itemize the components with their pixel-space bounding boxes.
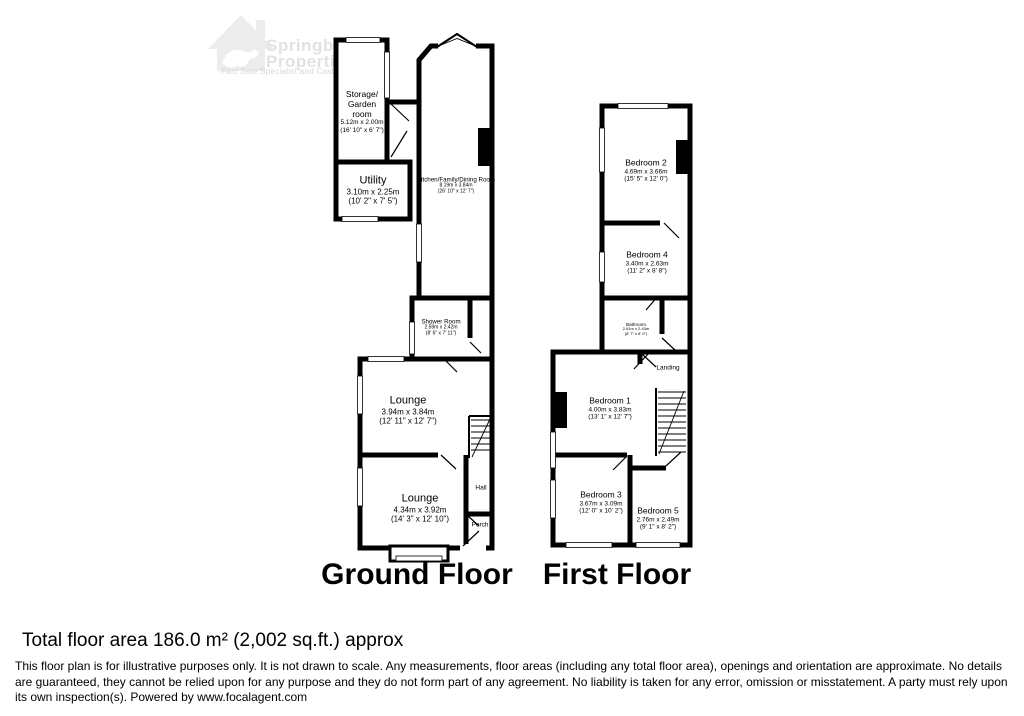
room-label-kitchen: Kitchen/Family/Dining Room 8.19m x 3.84m…: [417, 177, 495, 196]
room-name: Porch: [472, 521, 489, 528]
chimney-breast: [478, 128, 494, 166]
room-name: Lounge: [379, 394, 437, 407]
room-dim-imperial: (15' 5" x 12' 0"): [624, 176, 668, 183]
total-floor-area: Total floor area 186.0 m² (2,002 sq.ft.)…: [22, 630, 403, 652]
room-label-bedroom-5: Bedroom 5 2.76m x 2.49m (9' 1" x 8' 2"): [637, 507, 680, 532]
room-label-storage-garden: Storage/ Garden room 5.12m x 2.00m (16' …: [340, 90, 384, 134]
room-dim-imperial: (12' 11" x 12' 7"): [379, 416, 437, 425]
room-dim-imperial: (14' 3" x 12' 10"): [391, 514, 449, 523]
room-dim-imperial: (8' 7" x 8' 0"): [623, 332, 649, 337]
staircase-first: [656, 388, 686, 456]
room-dim-imperial: (13' 1" x 12' 7"): [588, 414, 632, 421]
room-dim-metric: 5.12m x 2.00m: [340, 119, 384, 126]
room-name: Bedroom 4: [626, 251, 669, 261]
room-name: Lounge: [391, 492, 449, 505]
bay-window: [437, 34, 477, 50]
room-label-bathroom: Bathroom 2.61m x 2.43m (8' 7" x 8' 0"): [623, 322, 649, 336]
room-name: Hall: [475, 484, 486, 491]
room-name: Landing: [656, 364, 679, 371]
floorplan-page: Springbok Properties Fast Sale Specialis…: [0, 0, 1024, 716]
room-dim-metric: 3.67m x 3.09m: [579, 500, 623, 507]
room-label-bedroom-1: Bedroom 1 4.00m x 3.83m (13' 1" x 12' 7"…: [588, 397, 632, 422]
room-dim-imperial: (16' 10" x 6' 7"): [340, 127, 384, 134]
room-label-hall: Hall: [475, 484, 486, 491]
room-dim-metric: 4.34m x 3.92m: [391, 505, 449, 514]
floor-plan-drawing: [0, 0, 1024, 716]
chimney-breast: [553, 392, 567, 428]
room-label-shower-room: Shower Room 2.59m x 2.42m (8' 6" x 7' 11…: [421, 319, 460, 338]
room-name: Bedroom 2: [624, 159, 668, 169]
room-name: Storage/ Garden room: [340, 90, 384, 119]
room-dim-imperial: (8' 6" x 7' 11"): [421, 332, 460, 338]
room-name: Utility: [347, 174, 400, 187]
room-dim-metric: 2.76m x 2.49m: [637, 516, 680, 523]
room-dim-metric: 4.69m x 3.66m: [624, 168, 668, 175]
room-label-lounge-1: Lounge 3.94m x 3.84m (12' 11" x 12' 7"): [379, 394, 437, 425]
room-dim-imperial: (12' 0" x 10' 2"): [579, 508, 623, 515]
room-dim-metric: 3.40m x 2.63m: [626, 260, 669, 267]
room-name: Bedroom 3: [579, 491, 623, 501]
ground-floor-title: Ground Floor: [321, 558, 513, 592]
room-name: Bedroom 1: [588, 397, 632, 407]
room-dim-imperial: (11' 2" x 8' 8"): [626, 268, 669, 275]
room-label-bedroom-2: Bedroom 2 4.69m x 3.66m (15' 5" x 12' 0"…: [624, 159, 668, 184]
chimney-breast: [676, 140, 692, 174]
room-name: Bedroom 5: [637, 507, 680, 517]
first-floor-title: First Floor: [543, 558, 691, 592]
first-floor-plan: [551, 104, 693, 548]
room-dim-metric: 3.10m x 2.25m: [347, 187, 400, 196]
room-label-bedroom-3: Bedroom 3 3.67m x 3.09m (12' 0" x 10' 2"…: [579, 491, 623, 516]
room-label-landing: Landing: [656, 364, 679, 371]
room-label-utility: Utility 3.10m x 2.25m (10' 2" x 7' 5"): [347, 174, 400, 205]
room-label-lounge-2: Lounge 4.34m x 3.92m (14' 3" x 12' 10"): [391, 492, 449, 523]
room-dim-metric: 3.94m x 3.84m: [379, 407, 437, 416]
disclaimer-text: This floor plan is for illustrative purp…: [15, 659, 1013, 706]
room-label-porch: Porch: [472, 521, 489, 528]
room-dim-imperial: (10' 2" x 7' 5"): [347, 196, 400, 205]
room-label-bedroom-4: Bedroom 4 3.40m x 2.63m (11' 2" x 8' 8"): [626, 251, 669, 276]
room-dim-imperial: (26' 10" x 12' 7"): [417, 190, 495, 196]
room-dim-metric: 4.00m x 3.83m: [588, 406, 632, 413]
room-dim-imperial: (9' 1" x 8' 2"): [637, 524, 680, 531]
